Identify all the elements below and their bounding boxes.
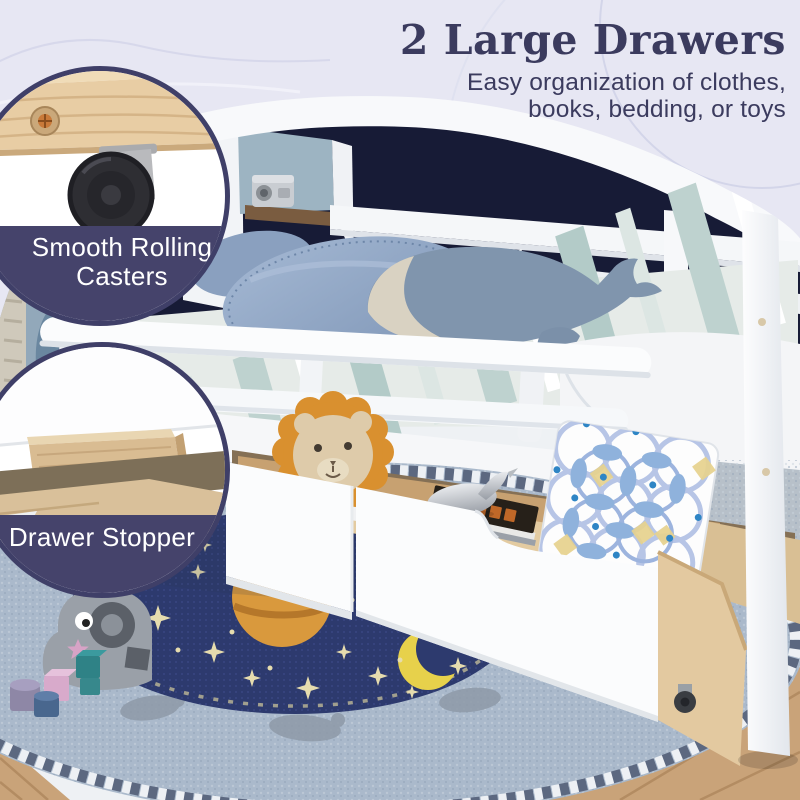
headline-subtitle-line1: Easy organization of clothes, (467, 69, 786, 96)
callout-casters: Smooth Rolling Casters (0, 66, 230, 326)
callout-stopper: Drawer Stopper (0, 342, 230, 598)
caster-wheel (70, 154, 152, 236)
headline-subtitle-line2: books, bedding, or toys (528, 96, 786, 123)
headline-subtitle: Easy organization of clothes, books, bed… (400, 70, 786, 124)
casters-label-line1: Smooth Rolling (19, 233, 225, 262)
radio-toy (252, 175, 294, 207)
casters-label-line2: Casters (19, 262, 225, 291)
headline-title: 2 Large Drawers (400, 16, 786, 64)
casters-label-band: Smooth Rolling Casters (0, 226, 225, 321)
stopper-label-band: Drawer Stopper (0, 515, 225, 593)
headline: 2 Large Drawers Easy organization of clo… (400, 16, 786, 124)
bed-product-infographic: 2 Large Drawers Easy organization of clo… (0, 0, 800, 800)
stopper-label: Drawer Stopper (0, 523, 225, 552)
